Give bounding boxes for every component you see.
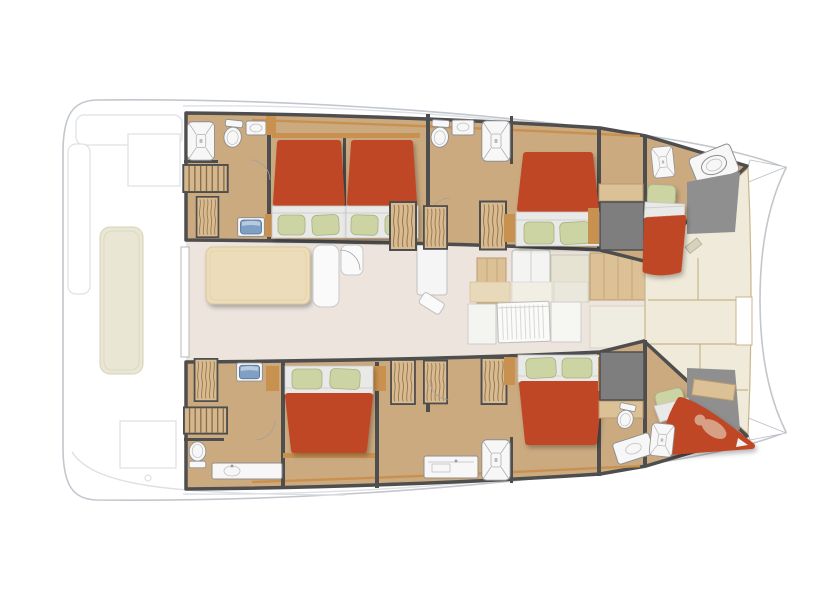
toilet-port-mid [430, 119, 449, 147]
vanity-faucet [455, 460, 458, 463]
wardrobe-stbd-2 [424, 361, 447, 404]
nightstand-stbd-fwd-left [504, 357, 515, 385]
deck-hatch-lower [120, 421, 176, 468]
staircase-starboard [184, 407, 227, 433]
nightstand-port-fwd-left [504, 214, 515, 242]
bow-wedge-port [687, 172, 740, 234]
port-headboard-trim [272, 133, 420, 138]
saloon-sofa [313, 245, 339, 307]
wardrobe-stbd-1 [391, 360, 415, 404]
wardrobe-stbd-aft [195, 359, 218, 401]
chart-table [417, 243, 447, 295]
sink-port-aft [238, 218, 265, 237]
counter-stbd-aft [212, 463, 282, 479]
wall-stbd-head [184, 438, 224, 441]
sink-stbd-aft [237, 363, 263, 381]
wardrobe-stbd-3 [482, 358, 507, 404]
stbd-headboard-trim [283, 453, 375, 458]
staircase-port [183, 165, 227, 192]
bench-cushion [100, 227, 143, 374]
toilet-stbd-aft [189, 442, 206, 468]
double-bed-port-aft [272, 143, 346, 238]
deck-fitting-bottom [145, 475, 151, 481]
double-bed-starboard-forward [518, 355, 604, 442]
washbasin-port-aft [246, 121, 266, 135]
shower-port-mid [482, 121, 510, 161]
deck-hatch-upper [128, 134, 180, 186]
catamaran-floor-plan [0, 0, 840, 600]
saloon [181, 240, 648, 362]
counter-panel-wood [470, 282, 510, 302]
nightstand-stbd-aft-left [266, 366, 279, 391]
wardrobe-port-3 [480, 202, 506, 250]
nightstand-port-fwd-right [588, 208, 599, 244]
saloon-seat [341, 245, 363, 275]
saloon-table [206, 247, 310, 304]
wardrobe-port-2 [424, 206, 447, 249]
floor-plan-canvas [0, 0, 840, 600]
counter-faucet [231, 465, 234, 468]
wardrobe-block-port [600, 202, 644, 250]
shower-stbd-bow [649, 423, 675, 458]
side-locker [68, 144, 90, 294]
wardrobe-port-1 [390, 202, 416, 250]
foredeck-step [736, 297, 752, 345]
slatted-companionway-door [497, 301, 550, 343]
forward-panel-left [468, 304, 496, 344]
wood-cabinet-port-aft [266, 116, 276, 135]
counter-panel-cream [554, 282, 588, 302]
wardrobe-port-aft [197, 197, 219, 237]
starboard-hull [184, 340, 752, 489]
counter-panel-white [512, 282, 552, 302]
port-fwd-plank [599, 184, 643, 201]
nightstand-stbd-aft-right [373, 366, 386, 391]
cockpit-sliding-door [181, 247, 189, 357]
shower-port-bow [651, 146, 676, 179]
wardrobe-block-stbd [600, 352, 644, 400]
double-bed-starboard-aft [285, 366, 373, 450]
forward-panel-right [551, 302, 581, 342]
shower-stbd-mid [482, 440, 510, 480]
washbasin-port-mid [452, 120, 474, 135]
shower-port-aft [187, 122, 214, 160]
